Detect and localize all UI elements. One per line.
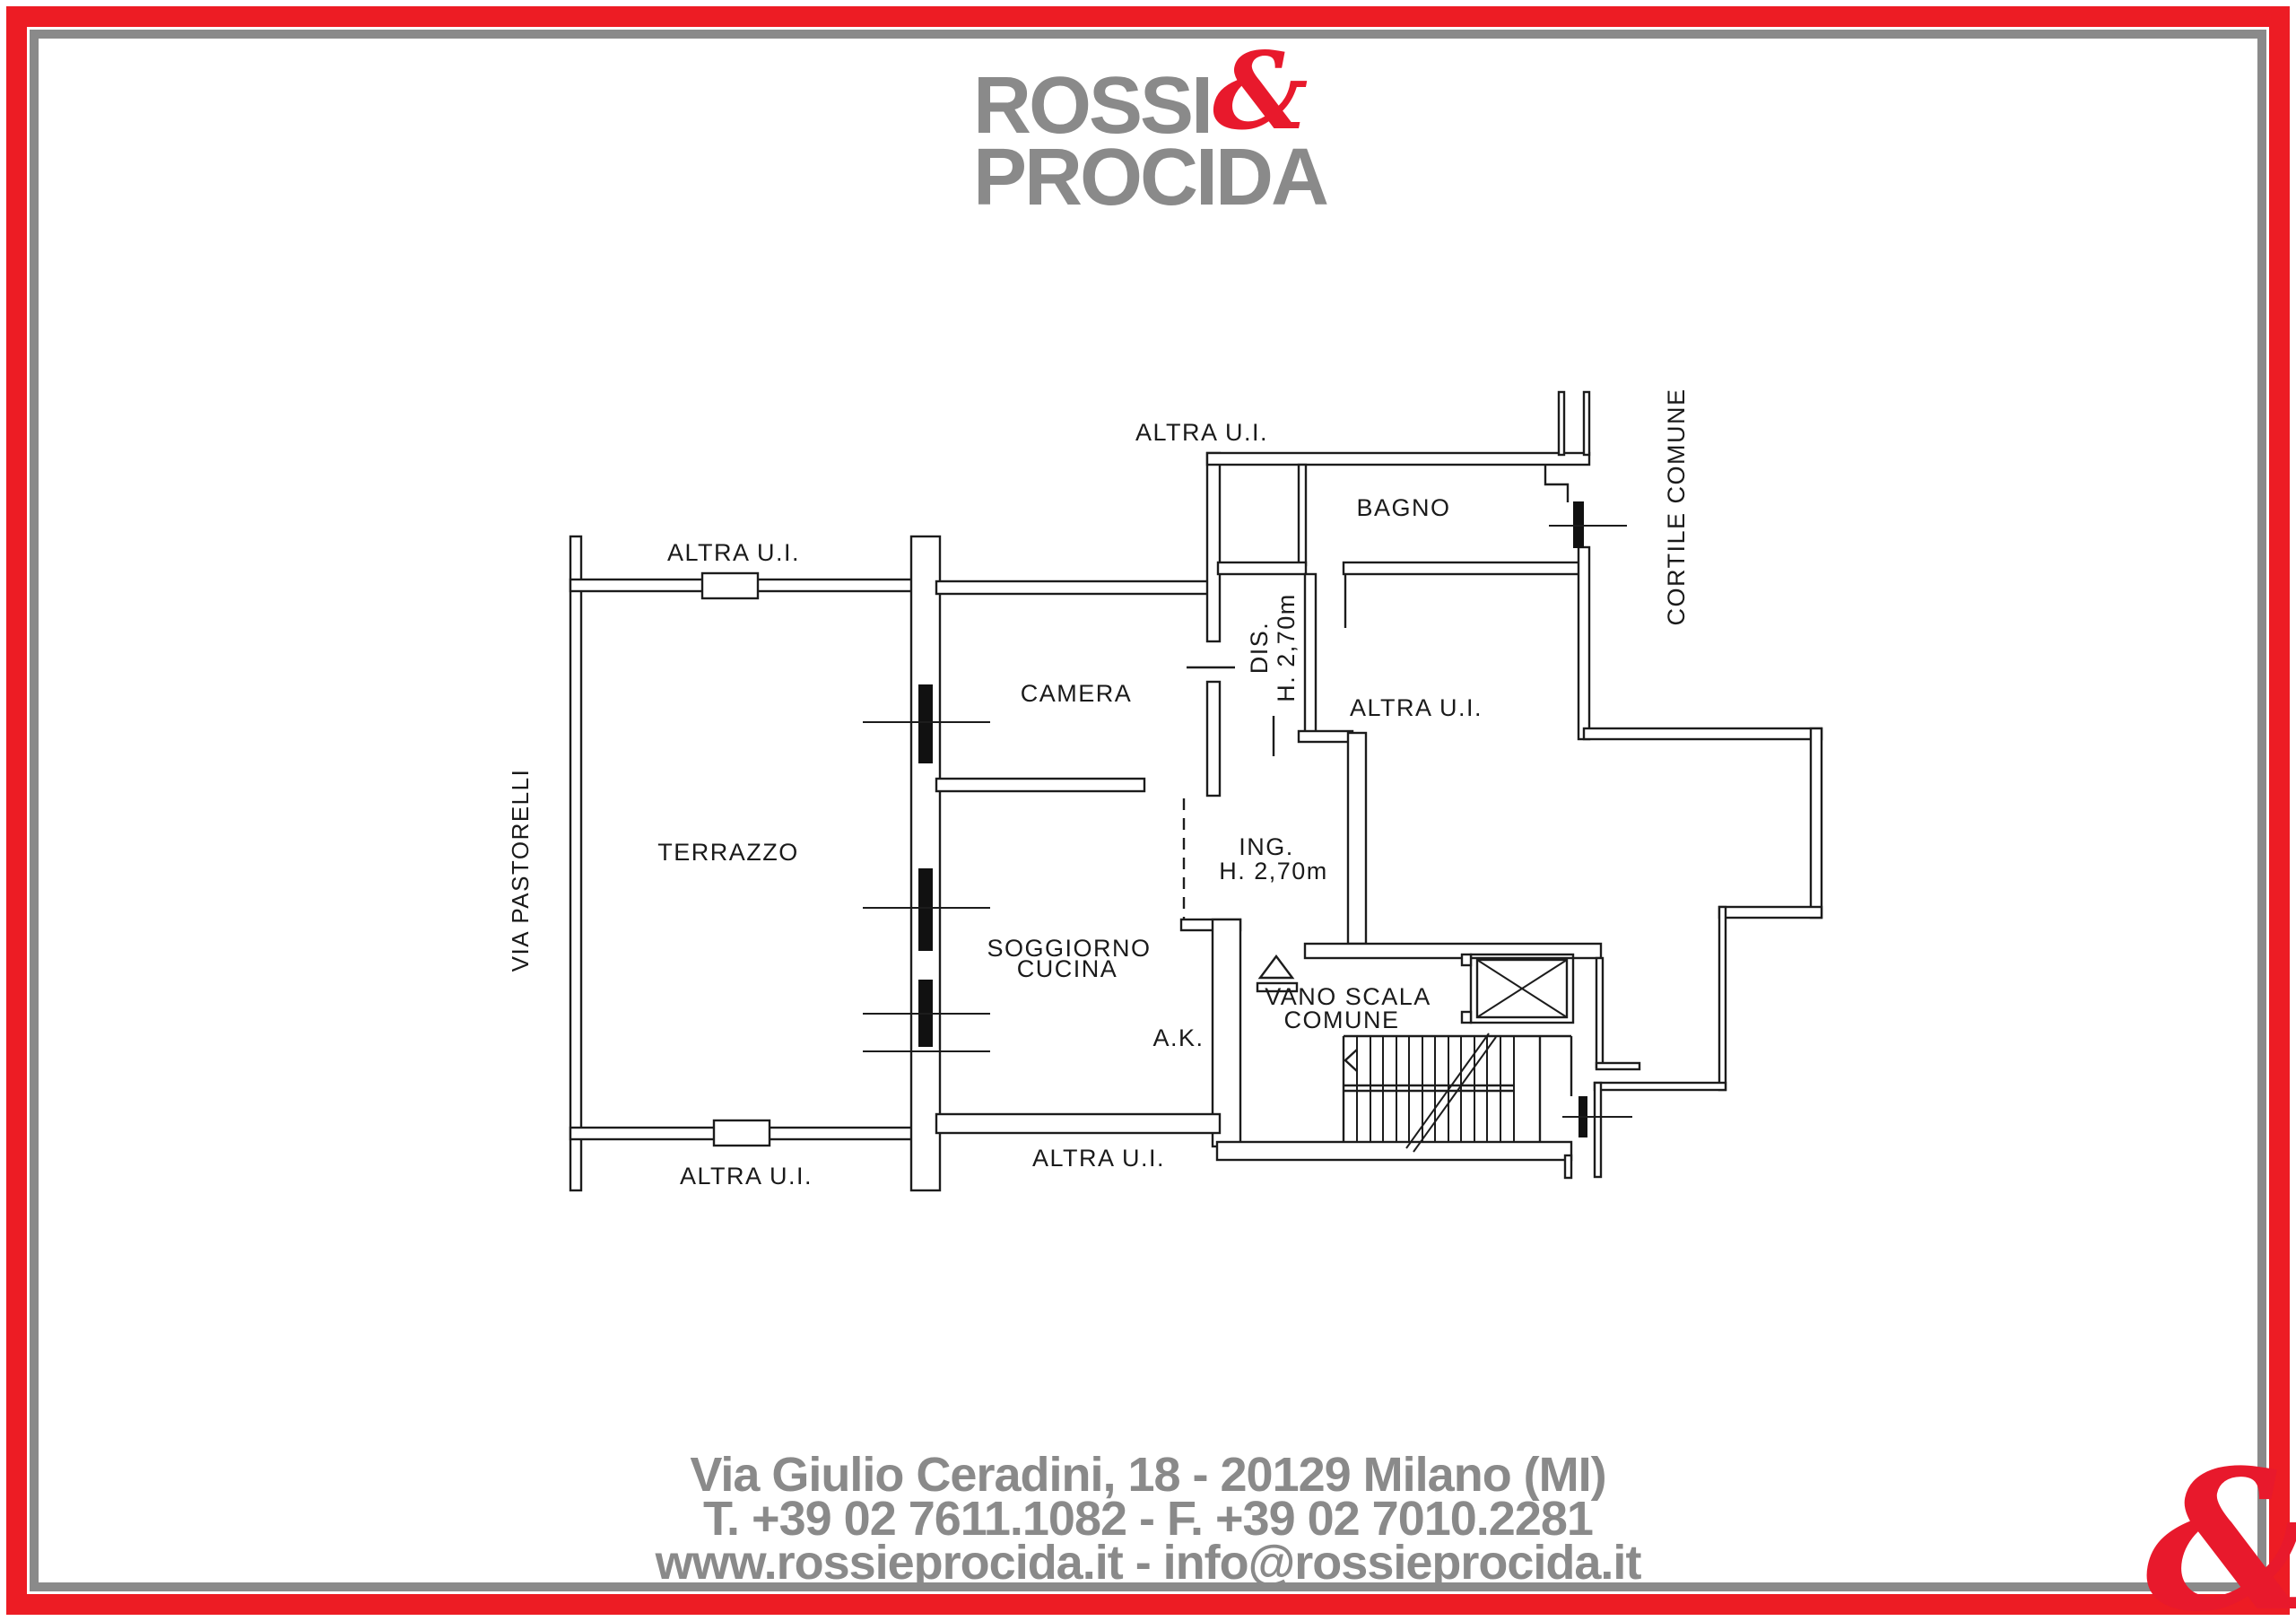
wall-camera-top [936,581,1218,594]
wall-camera-bottom [936,779,1144,791]
corner-ampersand-icon: & [2145,1427,2296,1621]
label-ing-height: H. 2,70m [1219,858,1328,885]
label-terrazzo: TERRAZZO [657,839,799,866]
logo: ROSSI & PROCIDA [973,29,1327,222]
window-terrazzo-2-icon [918,868,933,951]
label-bagno: BAGNO [1356,494,1450,521]
wall-room-right [1811,728,1822,918]
label-vano-scala-comune: COMUNE [1284,1007,1400,1033]
wall-ing-right-jog [1299,731,1352,742]
wall-room-bottom [1719,907,1822,918]
wall-terrazzo-divider [911,536,940,1190]
wall-corridor-left-upper [1207,453,1220,641]
wall-right-outer-upper [1578,547,1589,739]
label-camera: CAMERA [1021,680,1133,707]
wall-soggiorno-bottom [936,1114,1220,1133]
label-dis: DIS. [1246,622,1273,675]
elevator-door-notch-bottom [1462,1012,1471,1023]
label-ak: A.K. [1152,1024,1204,1051]
wall-top-right-stub-a [1559,392,1564,455]
label-cucina: CUCINA [1017,955,1118,982]
wall-stair-bottom-jog [1565,1155,1571,1178]
footer-web: www.rossieprocida.it - info@rossieprocid… [655,1536,1642,1590]
logo-line2: PROCIDA [973,133,1327,222]
wall-corridor-left-lower [1207,682,1220,796]
wall-elevator-right-h [1596,1063,1639,1069]
wall-lobby-vertical [1595,1083,1601,1177]
stairs-icon [1344,1033,1571,1152]
wall-lobby-horizontal [1595,1083,1726,1090]
label-altra-ui-bottom-left: ALTRA U.I. [680,1163,813,1190]
label-cortile-comune: CORTILE COMUNE [1663,388,1690,625]
label-via-pastorelli: VIA PASTORELLI [507,769,534,972]
wall-vano-scala-top [1305,944,1601,958]
wall-room-left-lower [1348,733,1366,944]
entrance-triangle-icon [1260,956,1292,978]
label-altra-ui-top-left: ALTRA U.I. [667,539,800,566]
stair-treads [1357,1036,1514,1142]
wall-stair-bottom [1217,1142,1571,1160]
label-ing: ING. [1239,833,1294,860]
elevator-door-notch-top [1462,954,1471,965]
walls [570,392,1822,1190]
wall-left-outer [570,536,581,1190]
bagno-corner-step [1545,465,1568,502]
label-altra-ui-right: ALTRA U.I. [1350,694,1483,721]
wall-ak [1213,919,1240,1146]
label-altra-ui-top-center: ALTRA U.I. [1135,419,1268,446]
floor-plan-canvas: ROSSI & PROCIDA [0,0,2296,1621]
stairs-direction-arrow-icon [1345,1050,1357,1071]
wall-room-top-right [1584,728,1822,739]
label-altra-ui-bottom-center: ALTRA U.I. [1032,1145,1165,1172]
wall-room-right-lower [1719,907,1726,1090]
wall-bagno-left [1299,465,1306,565]
wall-bagno-bottom-a [1218,562,1306,574]
window-bottom-left-icon [714,1120,770,1146]
wall-ing-right-upper [1305,574,1316,733]
wall-bagno-bottom-b [1344,562,1584,574]
window-terrazzo-1-icon [918,684,933,763]
label-dis-height: H. 2,70m [1273,593,1300,702]
window-top-left-icon [702,573,758,598]
footer: Via Giulio Ceradini, 18 - 20129 Milano (… [655,1448,1642,1590]
wall-top-right-stub-b [1584,392,1589,455]
stairs-cut-line-b [1413,1037,1496,1152]
wall-elevator-right [1596,958,1603,1068]
wall-bagno-top [1207,453,1589,465]
elevator-icon [1462,954,1573,1023]
